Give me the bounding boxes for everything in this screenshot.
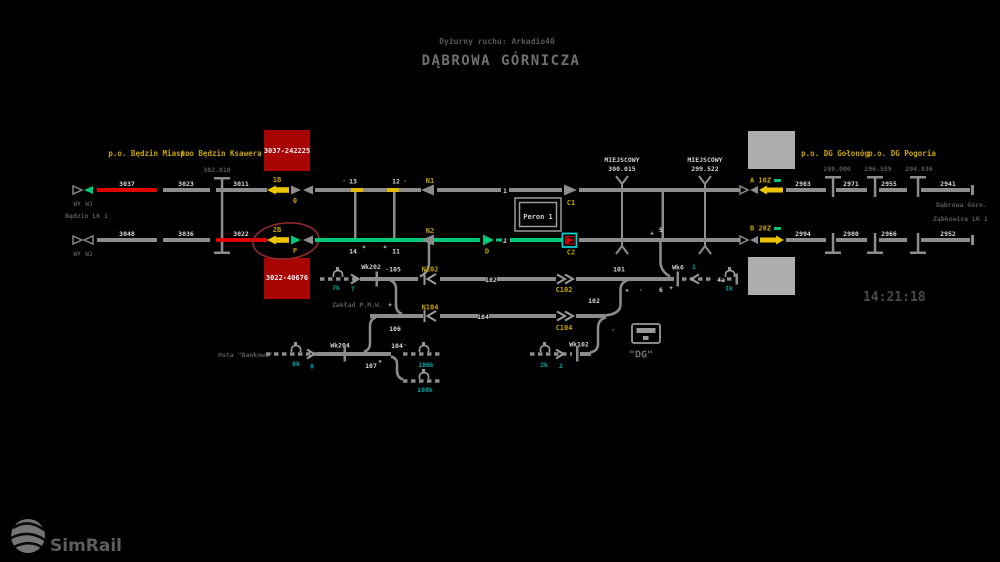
- signal-n2[interactable]: [421, 235, 434, 246]
- crossing-2-symbol[interactable]: [699, 176, 711, 254]
- signal-d-label: D: [485, 248, 489, 256]
- switch-5-label: 5: [659, 226, 663, 234]
- zabkowice-label: Ząbkowice LK 1: [933, 215, 988, 223]
- track-102b-number: 102: [588, 297, 600, 305]
- track-104-number: 104: [477, 313, 489, 321]
- shunt-label-8k: 8k: [292, 360, 300, 368]
- clock: 14:21:18: [863, 290, 926, 305]
- shunt-label-1: 1: [692, 263, 696, 271]
- route-dash-d: [496, 239, 502, 242]
- track102-segment-a[interactable]: [440, 277, 486, 281]
- wk6-label: Wk6: [672, 264, 684, 272]
- block-label-2966: 2966: [881, 230, 897, 238]
- signal-2b-label: 2B: [273, 226, 281, 234]
- direction-arrow-left-b[interactable]: [750, 236, 758, 244]
- direction-arrow-right-a[interactable]: [740, 186, 748, 194]
- track2-segment-f[interactable]: [579, 238, 740, 242]
- block-label-2941: 2941: [940, 180, 956, 188]
- signal-c1-label: C1: [567, 199, 575, 207]
- placeholder-box-top: [748, 131, 795, 169]
- station-title: DĄBROWA GÓRNICZA: [422, 51, 581, 69]
- crossover-13-14[interactable]: [354, 192, 357, 238]
- signal-b[interactable]: [760, 236, 784, 245]
- shunt-label-2k: 2k: [540, 361, 548, 369]
- track2-end-tick: [971, 235, 974, 245]
- switch-6-label: 6: [659, 286, 663, 294]
- bedzin-lk1-label: Będzin LK 1: [65, 212, 108, 220]
- track107-segment[interactable]: [317, 352, 391, 356]
- mark-102-dot: ·: [611, 327, 615, 334]
- dwarf-signal-1k[interactable]: [726, 267, 735, 277]
- direction-arrow-left-a[interactable]: [750, 186, 758, 194]
- track1-segment-a[interactable]: [315, 188, 351, 192]
- block-label-2952: 2952: [940, 230, 956, 238]
- track104-segment-c[interactable]: [576, 314, 605, 318]
- huta-bankowa-label: Huta "Bankowa": [218, 351, 273, 359]
- block-separators: [825, 176, 926, 254]
- signal-n102[interactable]: [424, 273, 437, 285]
- siding-4a-end-tick: [736, 274, 739, 285]
- mark-sw14: *: [362, 245, 366, 252]
- connector-track2-to-101-sw6[interactable]: [661, 242, 671, 277]
- signal-2b-proceed-arrow[interactable]: [291, 236, 301, 245]
- mark-sw6-plus: +: [669, 285, 673, 292]
- connector-106-to-107[interactable]: [364, 318, 376, 352]
- track102-segment-b[interactable]: [497, 277, 556, 281]
- signal-2b[interactable]: [267, 236, 289, 245]
- block-label-2955: 2955: [881, 180, 897, 188]
- direction-arrow-left-2b[interactable]: [303, 236, 313, 245]
- signal-1b-label: 1B: [273, 176, 281, 184]
- block-3011[interactable]: [216, 188, 267, 192]
- block-3022-occupied[interactable]: [216, 238, 267, 242]
- connector-104-to-101[interactable]: [605, 280, 630, 316]
- shunting-signal-1[interactable]: [691, 275, 699, 284]
- peron1-label: Peron 1: [523, 213, 553, 221]
- duty-officer-label: Dyżurny ruchu: Arkadio40: [439, 36, 555, 46]
- block-label-2903: 2903: [795, 180, 811, 188]
- shunt-label-7: 7: [351, 285, 355, 293]
- mark-sw12: ·: [403, 178, 407, 185]
- km-post-298: 298.000: [823, 165, 850, 173]
- wk202-label: Wk202: [361, 263, 381, 271]
- mark-107-star: *: [378, 360, 382, 367]
- track1-end-tick: [971, 185, 974, 195]
- mark-sw13: ·: [342, 178, 346, 185]
- post-bedzin-miasto-label: p.o. Będzin Miasto: [108, 149, 190, 158]
- simrail-logo: SimRail: [11, 519, 122, 556]
- platform-peron1: Peron 1: [515, 198, 561, 231]
- block-3048[interactable]: [97, 238, 157, 242]
- block-2955[interactable]: [879, 188, 907, 192]
- wk102-tick: [576, 347, 579, 362]
- post-dg-golonog-label: p.o. DG Gołonóg: [801, 149, 869, 158]
- track104-segment-a[interactable]: [440, 314, 478, 318]
- mark-102-star: *: [625, 289, 629, 296]
- shunt-label-8: 8: [310, 363, 314, 371]
- shunt-label-2: 2: [559, 362, 563, 370]
- block-2994[interactable]: [786, 238, 826, 242]
- track104-segment-b[interactable]: [489, 314, 556, 318]
- wj-entry-arrow-bottom[interactable]: [84, 236, 93, 244]
- block-3023[interactable]: [163, 188, 210, 192]
- wk102-track-stub[interactable]: [580, 352, 591, 356]
- track105-segment[interactable]: [360, 277, 418, 281]
- wj-label-bottom: WJ: [85, 251, 92, 258]
- block-label-3022: 3022: [233, 230, 249, 238]
- zaklad-pmw-label: Zakład P.M.W.: [332, 301, 383, 309]
- signal-c1[interactable]: [564, 185, 577, 196]
- train-number-top: 3037-242225: [264, 147, 310, 155]
- shunt-label-1k: 1k: [725, 285, 733, 293]
- wy-label-top: WY: [73, 201, 81, 208]
- crossing-2-name: MIEJSCOWY: [687, 156, 722, 164]
- block-label-2980: 2980: [843, 230, 859, 238]
- track1-segment-b[interactable]: [363, 188, 387, 192]
- switch-13-segment[interactable]: [351, 188, 363, 192]
- signal-d-proceed[interactable]: [483, 235, 494, 246]
- track-2-number: 2: [503, 237, 507, 245]
- track1-segment-e[interactable]: [509, 188, 562, 192]
- signal-c2-selected[interactable]: [563, 234, 577, 248]
- block-label-3048: 3048: [119, 230, 135, 238]
- signal-1b[interactable]: [267, 186, 289, 195]
- train-number-bottom: 3022-40676: [266, 274, 308, 282]
- block-label-3023: 3023: [178, 180, 194, 188]
- track1-segment-d[interactable]: [437, 188, 501, 192]
- dwarf-signal-106k[interactable]: [420, 342, 429, 352]
- block-2941[interactable]: [921, 188, 970, 192]
- switch-11-label: 11: [392, 248, 400, 256]
- block-2971[interactable]: [836, 188, 867, 192]
- block-label-3036: 3036: [178, 230, 194, 238]
- track-106-number: 106: [389, 325, 401, 333]
- train-description-box-bottom[interactable]: 3022-40676: [264, 258, 310, 299]
- track1-segment-c[interactable]: [399, 188, 421, 192]
- track-4a-number: 4a: [717, 276, 725, 284]
- mark-106-plus: +: [388, 302, 392, 309]
- track2-route-green-b[interactable]: [510, 238, 562, 242]
- shunt-label-7k: 7k: [332, 284, 340, 292]
- signal-b-route-indicator: [774, 227, 781, 230]
- track-101-number: 101: [613, 266, 625, 274]
- track1-segment-f[interactable]: [579, 188, 740, 192]
- wk6-tick: [677, 272, 680, 287]
- wj-label-top: WJ: [85, 201, 92, 208]
- signal-c102[interactable]: [557, 275, 573, 284]
- km-post-296: 296.589: [864, 165, 891, 173]
- mark-sw11: *: [383, 245, 387, 252]
- block-2952[interactable]: [921, 238, 970, 242]
- signal-2b-indicator: P: [293, 247, 297, 255]
- direction-arrow-left-1b[interactable]: [303, 186, 313, 195]
- dwarf-signal-2k[interactable]: [541, 342, 550, 352]
- mark-sw6-dot: ·: [639, 287, 643, 294]
- dwarf-signal-108k[interactable]: [420, 369, 429, 379]
- simrail-logo-text: SimRail: [50, 536, 122, 556]
- block-2980[interactable]: [836, 238, 867, 242]
- signal-1b-indicator: 0: [293, 197, 297, 205]
- post-bedzin-ksawera-label: p.o Będzin Ksawera: [180, 149, 262, 158]
- block-2966[interactable]: [879, 238, 907, 242]
- km-post-302: 302.010: [203, 166, 230, 174]
- track106-segment[interactable]: [370, 314, 423, 318]
- train-description-box-top[interactable]: 3037-242225: [264, 130, 310, 171]
- dwarf-signal-8k[interactable]: [292, 342, 301, 352]
- separator-302-cap-bottom: [214, 252, 230, 255]
- signal-n1-label: N1: [426, 177, 434, 185]
- switch-14-label: 14: [349, 248, 357, 256]
- connector-107-to-108k[interactable]: [391, 357, 403, 380]
- wk204-label: Wk204: [330, 342, 350, 350]
- dg-sign-icon[interactable]: [632, 324, 660, 343]
- track-107-number: 107: [365, 362, 377, 370]
- signal-c2-label: C2: [567, 249, 575, 257]
- signalling-panel: Dyżurny ruchu: Arkadio40 DĄBROWA GÓRNICZ…: [0, 0, 1000, 562]
- block-label-3037: 3037: [119, 180, 135, 188]
- signal-a[interactable]: [759, 186, 783, 195]
- shunt-label-108k: 108k: [417, 386, 433, 394]
- signal-c102-label: C102: [556, 286, 573, 294]
- block-2903[interactable]: [786, 188, 826, 192]
- direction-arrow-right-b[interactable]: [740, 236, 748, 244]
- dg-sign-label: "DG": [629, 350, 653, 361]
- mark-sw5: +: [650, 231, 654, 238]
- signal-n104[interactable]: [424, 310, 437, 322]
- signal-b-label: B 20Z: [750, 225, 771, 233]
- signal-n2-label: N2: [426, 227, 434, 235]
- wk204-tick: [344, 347, 347, 362]
- block-label-3011: 3011: [233, 180, 249, 188]
- block-label-2994: 2994: [795, 230, 811, 238]
- signal-c104[interactable]: [557, 312, 573, 321]
- placeholder-box-bottom: [748, 257, 795, 295]
- crossing-1-km: 300.015: [608, 165, 635, 173]
- crossing-1-symbol[interactable]: [616, 176, 628, 254]
- signal-a-route-indicator: [774, 179, 781, 182]
- signal-c104-label: C104: [556, 324, 573, 332]
- block-3036[interactable]: [163, 238, 210, 242]
- track-1-number: 1: [503, 187, 507, 195]
- crossing-2-km: 299.522: [691, 165, 718, 173]
- dabrowa-gorn-label: Dąbrowa Górn.: [936, 201, 987, 209]
- wk102-label: Wk102: [569, 341, 589, 349]
- wy-exit-arrow-bottom[interactable]: [73, 236, 82, 244]
- signal-n1[interactable]: [421, 185, 434, 196]
- shunt-label-106k: 106k: [418, 361, 434, 369]
- block-label-2971: 2971: [843, 180, 859, 188]
- signal-a-label: A 10Z: [750, 177, 771, 185]
- crossing-1-name: MIEJSCOWY: [604, 156, 639, 164]
- wy-exit-arrow-top[interactable]: [73, 186, 82, 194]
- direction-arrow-right-1b[interactable]: [291, 186, 301, 195]
- mark-104-dot: ·: [403, 342, 407, 349]
- track-102-number: 102: [485, 276, 497, 284]
- wk202-tick: [376, 272, 379, 287]
- crossover-12-11[interactable]: [393, 192, 396, 238]
- wj-entry-arrow-top-green[interactable]: [84, 186, 93, 194]
- track-105-number: 105: [389, 266, 401, 274]
- block-3037-occupied[interactable]: [97, 188, 157, 192]
- signal-n102-label: N102: [422, 266, 439, 274]
- switch-12-label: 12: [392, 178, 400, 186]
- connector-wk102-to-104[interactable]: [590, 318, 606, 353]
- km-post-294: 294.836: [905, 165, 932, 173]
- switch-12-segment[interactable]: [387, 188, 399, 192]
- switch-104-label: 104: [391, 342, 403, 350]
- dwarf-signal-7k[interactable]: [334, 267, 343, 277]
- wy-label-bottom: WY: [73, 251, 81, 258]
- switch-13-label: 13: [349, 178, 357, 186]
- post-dg-pogoria-label: p.o. DG Pogoria: [868, 149, 936, 158]
- track2-route-set-green[interactable]: [315, 238, 480, 242]
